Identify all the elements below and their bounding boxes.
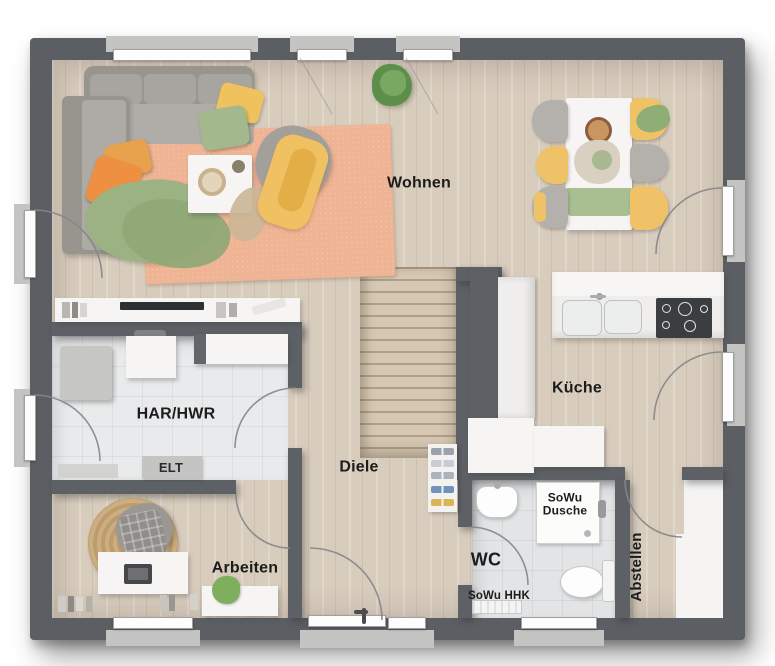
door-arc-entry — [310, 548, 382, 620]
room-label-abstellen: Abstellen — [629, 532, 645, 601]
door-arc-terrace — [656, 188, 722, 254]
door-arc-arbeiten — [236, 494, 290, 548]
annotation-sowu-hhk: SoWu HHK — [468, 590, 530, 602]
door-arc-kitchen — [654, 352, 722, 420]
room-label-arbeiten: Arbeiten — [212, 561, 279, 578]
door-arc-abstellen — [625, 480, 682, 537]
window-arc-har — [34, 395, 100, 461]
window-arc-living — [34, 210, 102, 278]
annotation-sowu-dusche-line2: Dusche — [543, 504, 588, 517]
floor-plan: Wohnen Küche HAR/HWR Diele Arbeiten WC A… — [0, 0, 775, 666]
room-label-wc: WC — [471, 551, 501, 570]
room-label-kueche: Küche — [552, 381, 602, 398]
window-open-line — [406, 58, 438, 114]
room-label-diele: Diele — [339, 460, 378, 477]
window-open-line — [300, 58, 332, 114]
room-label-wohnen: Wohnen — [387, 176, 451, 193]
annotation-elt: ELT — [159, 461, 183, 475]
annotation-sowu-dusche-line1: SoWu — [543, 491, 588, 504]
room-label-har-hwr: HAR/HWR — [137, 407, 216, 424]
annotation-sowu-dusche: SoWu Dusche — [543, 491, 588, 516]
door-swing-overlay — [0, 0, 775, 666]
door-arc-har-hwr — [235, 388, 295, 448]
